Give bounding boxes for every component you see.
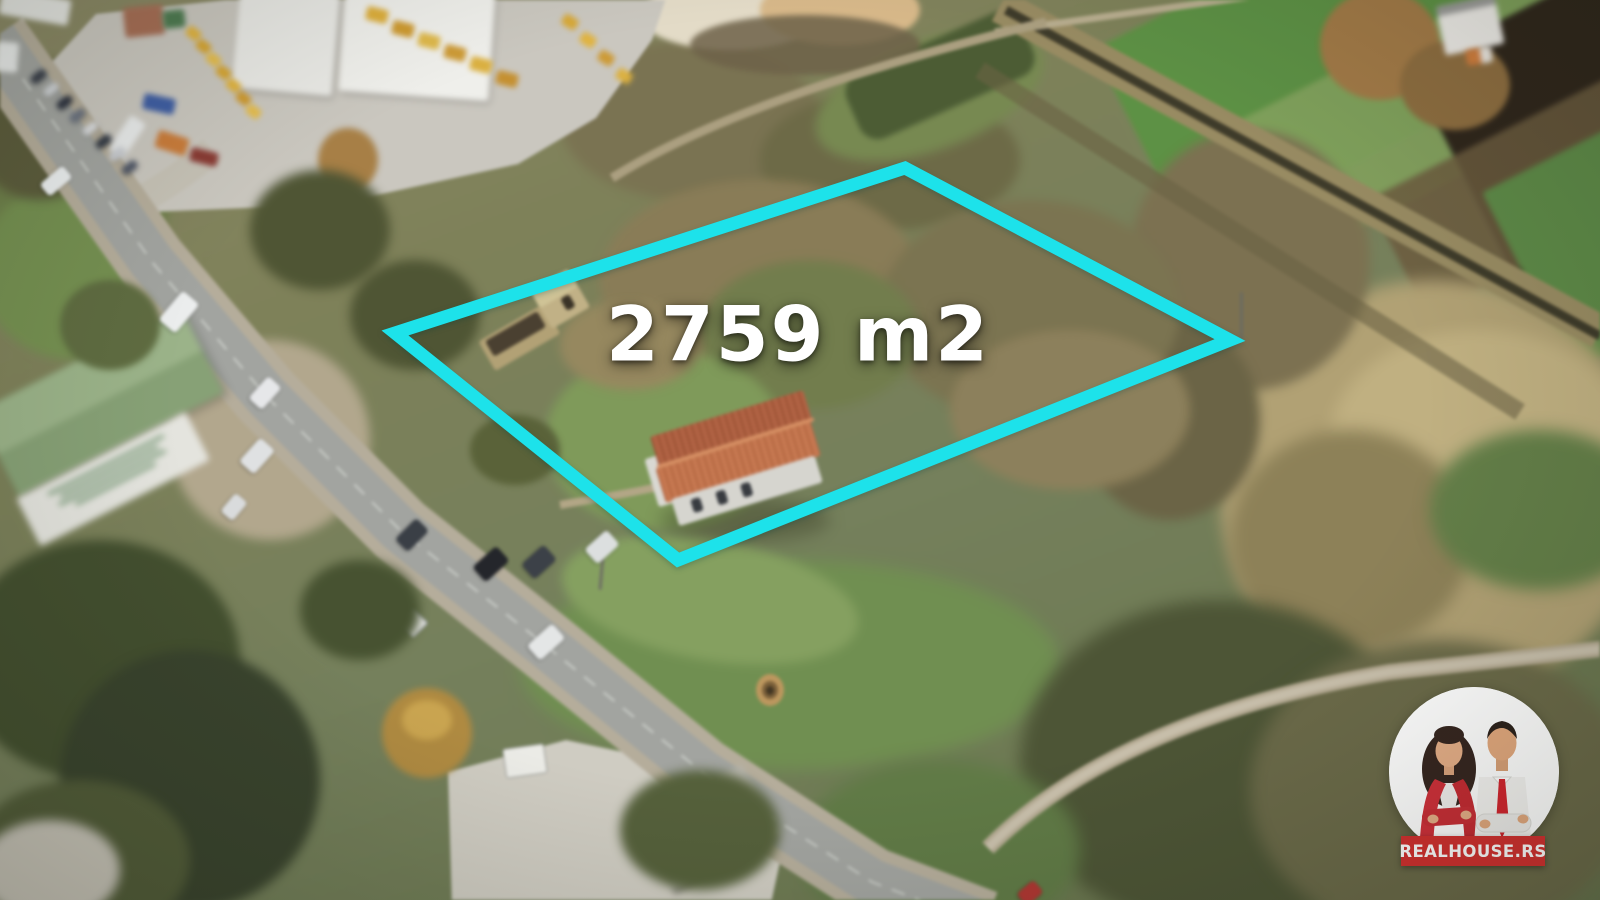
two-agents-photo-icon bbox=[1389, 687, 1559, 857]
dirt-track bbox=[612, 22, 1046, 178]
warehouse-building bbox=[232, 0, 341, 96]
bush bbox=[620, 770, 780, 890]
green-container bbox=[162, 9, 186, 29]
brick-building bbox=[123, 4, 166, 38]
bush bbox=[470, 415, 560, 485]
tree bbox=[60, 280, 160, 370]
agency-logo bbox=[1389, 687, 1559, 857]
warehouse-building bbox=[338, 0, 495, 101]
well-center bbox=[766, 686, 774, 695]
bush-row bbox=[250, 170, 390, 290]
aerial-listing-photo: 2759 m2 bbox=[0, 0, 1600, 900]
photo-layers bbox=[0, 0, 1600, 900]
area-label: 2759 m2 bbox=[606, 290, 990, 379]
utility-pole bbox=[1240, 292, 1243, 340]
brand-name: REALHOUSE.RS bbox=[1399, 842, 1546, 861]
yellow-tree-highlight bbox=[402, 700, 452, 740]
bush bbox=[300, 560, 420, 660]
brand-banner: REALHOUSE.RS bbox=[1401, 836, 1545, 866]
bush-row bbox=[350, 260, 480, 370]
billboard-sign bbox=[502, 743, 548, 779]
canal-water bbox=[1006, 10, 1600, 336]
white-truck bbox=[0, 41, 19, 73]
driveway bbox=[560, 487, 658, 505]
